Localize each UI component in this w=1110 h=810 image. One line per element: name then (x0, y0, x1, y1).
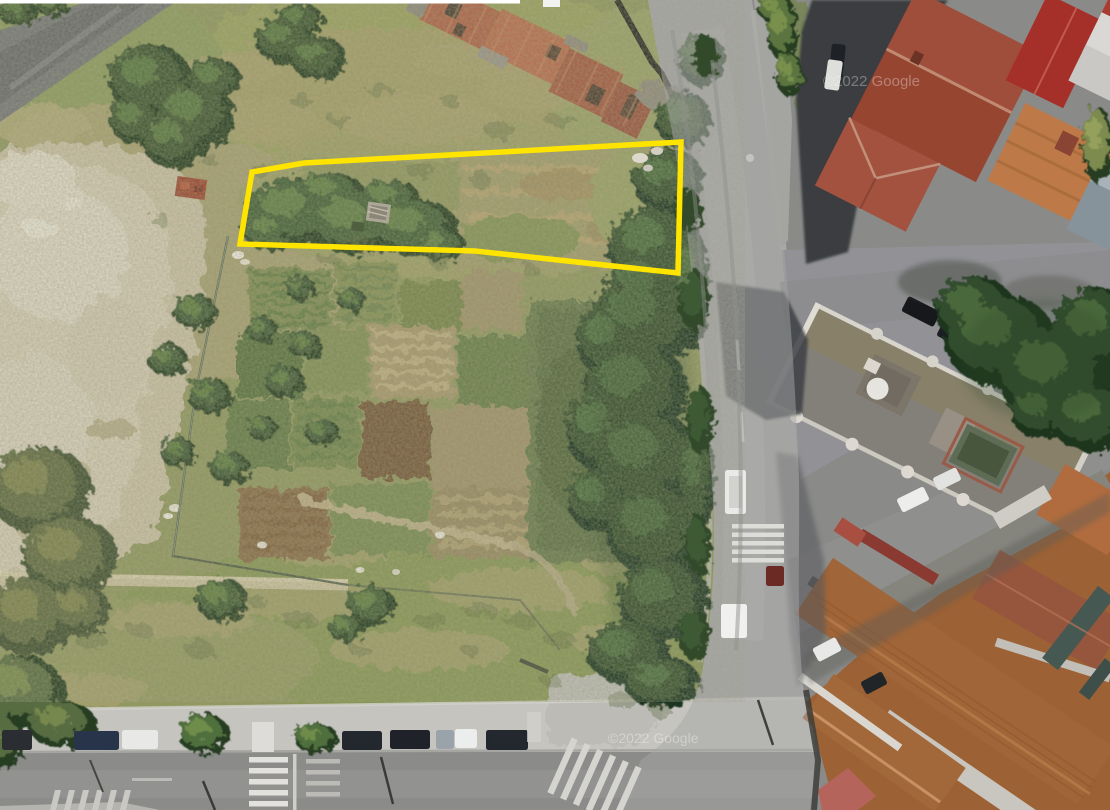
svg-text:©2022 Google: ©2022 Google (823, 73, 920, 90)
svg-text:©2022 Google: ©2022 Google (608, 730, 699, 746)
